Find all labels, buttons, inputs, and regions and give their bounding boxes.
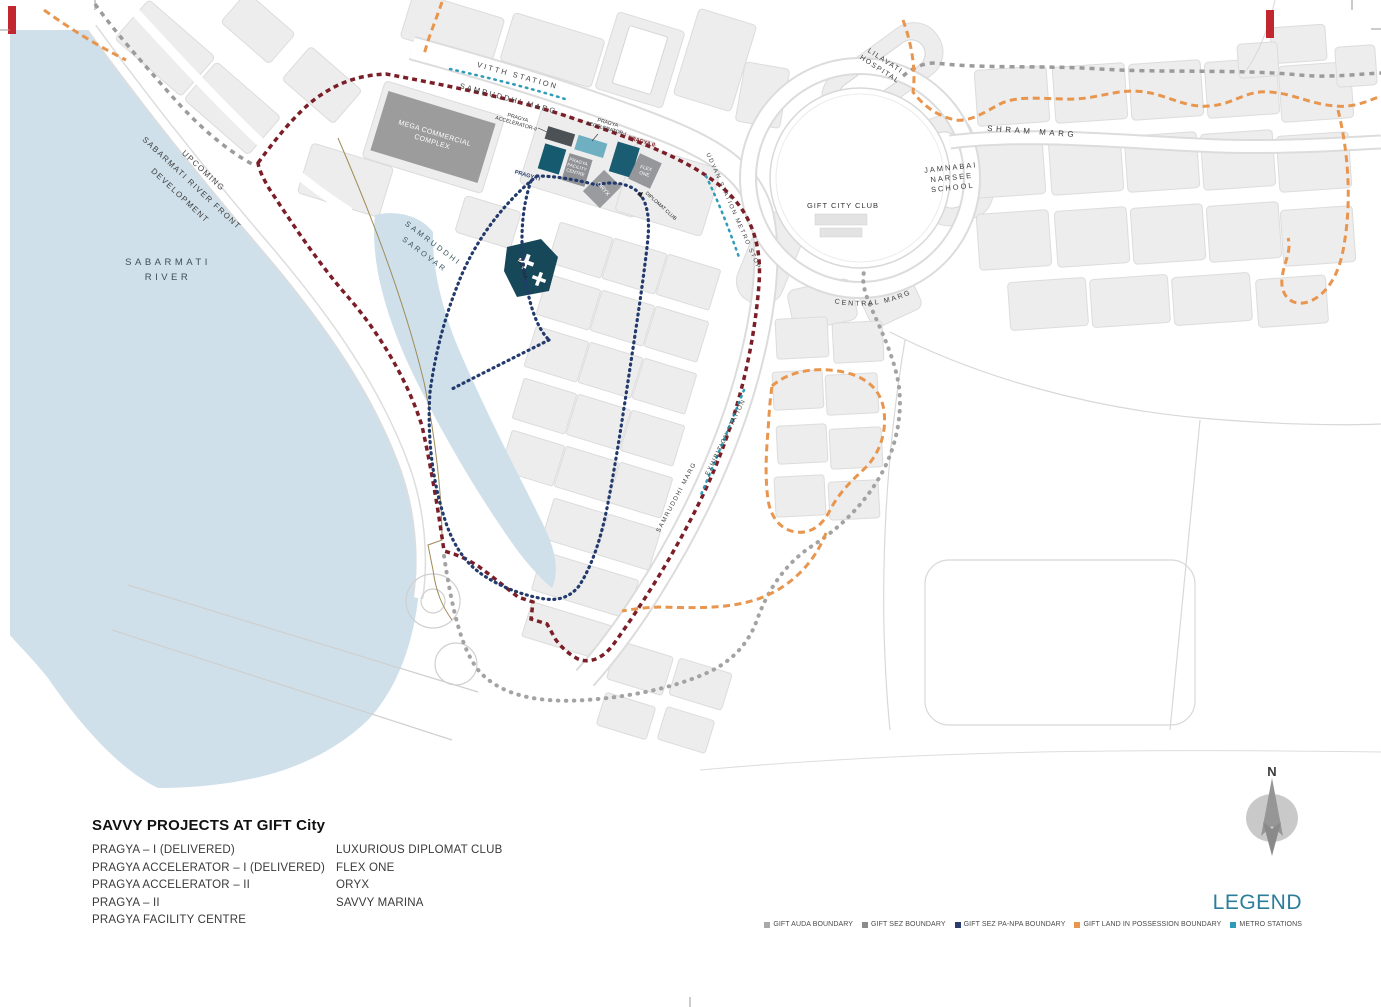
label-jamnabai-narsee-school: JAMNABAI NARSEE SCHOOL: [924, 160, 980, 194]
projects-title: SAVVY PROJECTS AT GIFT City: [92, 817, 580, 834]
label-gift-city-club: GIFT CITY CLUB: [807, 201, 879, 210]
registration-mark-topright: [1266, 10, 1274, 38]
svg-text:SABARMATI: SABARMATI: [125, 257, 211, 268]
sabarmati-river-water: [10, 30, 421, 788]
legend-swatch-pa-npa: [955, 922, 961, 928]
project-item: PRAGYA ACCELERATOR – II: [92, 877, 336, 895]
project-item: PRAGYA ACCELERATOR – I (DELIVERED): [92, 860, 336, 878]
legend-label: GIFT LAND IN POSSESSION BOUNDARY: [1083, 921, 1221, 928]
project-item: ORYX: [336, 877, 580, 895]
legend: GIFT AUDA BOUNDARY GIFT SEZ BOUNDARY GIF…: [764, 921, 1302, 928]
project-item: PRAGYA – II: [92, 895, 336, 913]
building-gift-city-club: [815, 214, 867, 225]
legend-label: GIFT SEZ PA-NPA BOUNDARY: [964, 921, 1066, 928]
legend-item-possession: GIFT LAND IN POSSESSION BOUNDARY: [1074, 921, 1221, 928]
projects-column-1: PRAGYA – I (DELIVERED) PRAGYA ACCELERATO…: [92, 842, 336, 930]
legend-label: GIFT SEZ BOUNDARY: [871, 921, 946, 928]
project-item: LUXURIOUS DIPLOMAT CLUB: [336, 842, 580, 860]
north-arrow: N: [1246, 764, 1298, 856]
projects-column-2: LUXURIOUS DIPLOMAT CLUB FLEX ONE ORYX SA…: [336, 842, 580, 930]
legend-item-metro: METRO STATIONS: [1230, 921, 1302, 928]
project-item: PRAGYA FACILITY CENTRE: [92, 912, 336, 930]
north-arrow-label: N: [1267, 764, 1276, 779]
legend-swatch-possession: [1074, 922, 1080, 928]
city-blocks-top: [297, 0, 790, 249]
legend-label: GIFT AUDA BOUNDARY: [773, 921, 853, 928]
project-item: FLEX ONE: [336, 860, 580, 878]
project-item: SAVVY MARINA: [336, 895, 580, 913]
legend-item-sez: GIFT SEZ BOUNDARY: [862, 921, 946, 928]
projects-panel: SAVVY PROJECTS AT GIFT City PRAGYA – I (…: [92, 817, 580, 930]
svg-text:RIVER: RIVER: [145, 272, 192, 283]
legend-item-auda: GIFT AUDA BOUNDARY: [764, 921, 853, 928]
gift-city-club-circle: [770, 88, 950, 268]
legend-swatch-auda: [764, 922, 770, 928]
legend-item-pa-npa: GIFT SEZ PA-NPA BOUNDARY: [955, 921, 1066, 928]
gift-city-map-page: VITTH STATION SAMRUDDHI MARG UPCOMING SA…: [0, 0, 1381, 1007]
project-item: PRAGYA – I (DELIVERED): [92, 842, 336, 860]
legend-swatch-metro: [1230, 922, 1236, 928]
legend-swatch-sez: [862, 922, 868, 928]
legend-label: METRO STATIONS: [1239, 921, 1302, 928]
legend-title: LEGEND: [1213, 891, 1302, 915]
